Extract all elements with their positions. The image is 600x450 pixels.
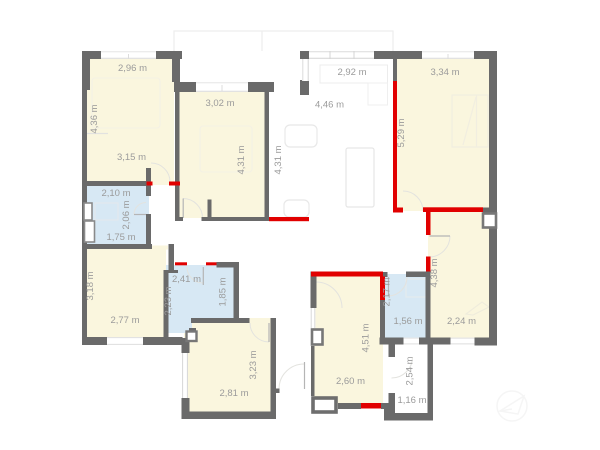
svg-text:1,56 m: 1,56 m <box>393 316 422 327</box>
svg-text:2,54 m: 2,54 m <box>405 356 416 385</box>
svg-text:2,81 m: 2,81 m <box>219 388 248 399</box>
svg-text:2,10 m: 2,10 m <box>101 188 130 199</box>
svg-text:2,17 m: 2,17 m <box>382 277 393 306</box>
svg-text:1,85 m: 1,85 m <box>218 277 229 306</box>
svg-text:2,23 m: 2,23 m <box>163 286 174 315</box>
svg-text:3,18 m: 3,18 m <box>85 271 96 300</box>
svg-text:2,77 m: 2,77 m <box>110 315 139 326</box>
svg-text:4,38 m: 4,38 m <box>429 258 440 287</box>
svg-text:4,36 m: 4,36 m <box>89 104 100 133</box>
svg-text:4,31 m: 4,31 m <box>236 145 247 174</box>
svg-text:2,96 m: 2,96 m <box>118 63 147 74</box>
svg-text:2,41 m: 2,41 m <box>172 274 201 285</box>
svg-text:3,34 m: 3,34 m <box>430 67 459 78</box>
svg-text:3,02 m: 3,02 m <box>205 98 234 109</box>
svg-text:2,24 m: 2,24 m <box>447 316 476 327</box>
svg-text:2,92 m: 2,92 m <box>337 67 366 78</box>
svg-text:4,46 m: 4,46 m <box>315 100 344 111</box>
svg-text:1,75 m: 1,75 m <box>106 232 135 243</box>
svg-text:1,16 m: 1,16 m <box>397 395 426 406</box>
svg-text:5,29 m: 5,29 m <box>396 118 407 147</box>
svg-text:2,60 m: 2,60 m <box>336 376 365 387</box>
svg-text:2,06 m: 2,06 m <box>121 200 132 229</box>
svg-text:4,51 m: 4,51 m <box>361 323 372 352</box>
svg-text:4,31 m: 4,31 m <box>273 145 284 174</box>
svg-text:3,15 m: 3,15 m <box>117 152 146 163</box>
svg-text:3,23 m: 3,23 m <box>248 350 259 379</box>
